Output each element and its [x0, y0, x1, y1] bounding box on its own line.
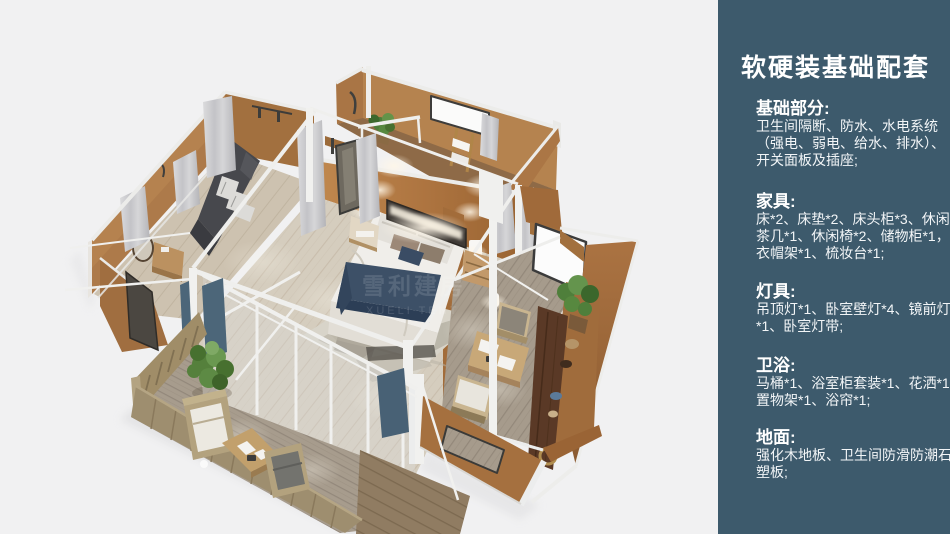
svg-text:雪利建房: 雪利建房 — [362, 273, 466, 299]
svg-text:XUELI TENT: XUELI TENT — [366, 305, 459, 317]
